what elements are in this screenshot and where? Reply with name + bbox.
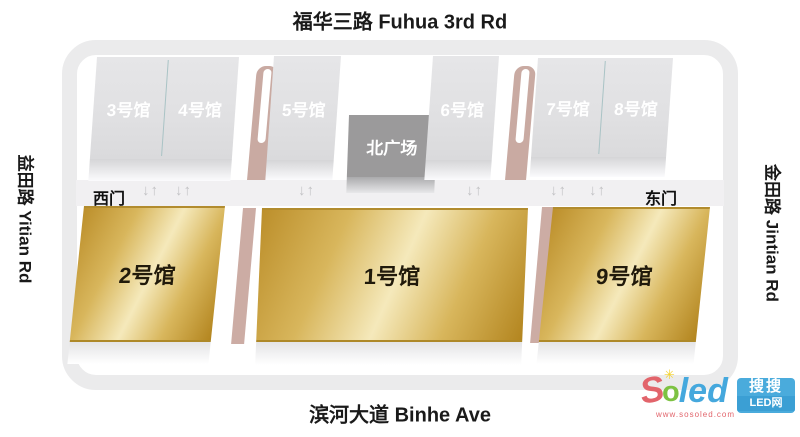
hall-7-label: 7号馆 [534,95,603,120]
hall-block-6: 6号馆 [424,56,499,180]
hall-5-label: 5号馆 [267,56,341,160]
logo-wordmark: S ✳o led [640,372,728,408]
logo-badge: 搜搜 LED网 [737,378,795,413]
logo-url-text: www.sosoled.com [656,410,735,419]
hall-block-top: 3号馆 4号馆 [90,57,239,159]
logo-letter-o: ✳o [662,378,680,407]
hall-block-9: 9号馆 [536,207,710,364]
hall-4-label: 4号馆 [164,96,236,121]
hall-block-front [265,160,333,180]
road-label-north: 福华三路 Fuhua 3rd Rd [293,6,507,35]
logo-badge-line2: LED网 [737,396,795,411]
sun-rays-icon: ✳ [664,368,675,381]
hall-block-7-8: 7号馆 8号馆 [530,58,673,177]
north-plaza: 北广场 [346,115,437,193]
logo-badge-line1: 搜搜 [737,378,795,396]
hall-block-front [424,160,491,180]
hall-block-3-4: 3号馆 4号馆 [88,57,239,181]
entrance-arrows-icon: ↓↑ [175,182,192,199]
sosoled-watermark-logo: S ✳o led www.sosoled.com 搜搜 LED网 [640,372,798,428]
hall-6-label: 6号馆 [426,56,499,160]
hall-8-label: 8号馆 [602,95,671,120]
road-label-west: 益田路 Yitian Rd [15,155,40,284]
hall-1-label: 1号馆 [256,208,528,342]
walkway-center-lane [515,69,529,143]
entrance-arrows-icon: ↓↑ [298,182,315,199]
hall-block-2: 2号馆 [67,206,225,364]
entrance-arrows-icon: ↓↑ [142,182,159,199]
north-plaza-front [346,177,435,193]
east-gate-label: 东门 [645,185,677,209]
hall-block-front [88,159,232,181]
hall-block-front [530,157,666,177]
hall-3-label: 3号馆 [93,96,165,121]
hall-block-front [536,342,695,364]
hall-9-label: 9号馆 [539,207,710,342]
hall-block-1: 1号馆 [255,208,528,365]
hall-block-front [67,342,210,364]
entrance-arrows-icon: ↓↑ [466,182,483,199]
hall-block-front [255,342,522,365]
logo-letters-led: led [679,374,728,408]
entrance-arrows-icon: ↓↑ [589,182,606,199]
hall-2-label: 2号馆 [70,206,225,342]
venue-map: 福华三路 Fuhua 3rd Rd 滨河大道 Binhe Ave 益田路 Yit… [0,0,800,437]
road-label-east: 金田路 Jintian Rd [762,164,787,302]
hall-block-top: 7号馆 8号馆 [531,58,673,157]
hall-block-5: 5号馆 [265,56,341,180]
road-label-south: 滨河大道 Binhe Ave [309,399,491,428]
entrance-arrows-icon: ↓↑ [550,182,567,199]
north-plaza-label: 北广场 [347,115,437,177]
